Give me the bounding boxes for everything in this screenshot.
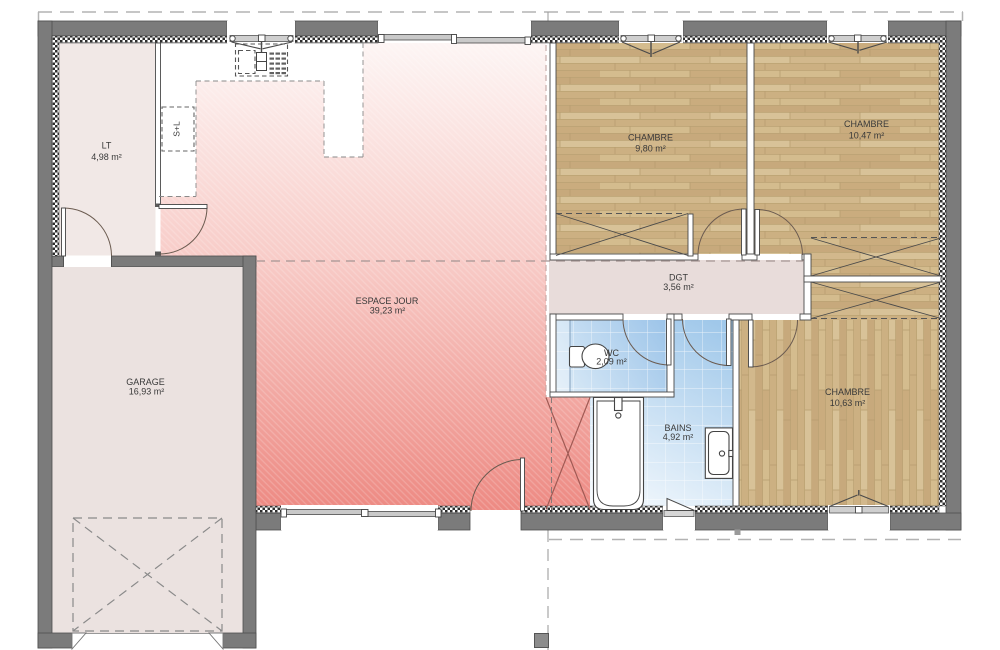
svg-text:16,93 m²: 16,93 m²: [129, 387, 165, 397]
svg-text:9,80 m²: 9,80 m²: [635, 144, 666, 154]
svg-text:4,98 m²: 4,98 m²: [91, 152, 122, 162]
svg-text:S+L: S+L: [172, 121, 182, 137]
svg-text:39,23 m²: 39,23 m²: [370, 306, 406, 316]
svg-text:DGT: DGT: [669, 273, 689, 283]
svg-text:ESPACE JOUR: ESPACE JOUR: [356, 296, 419, 306]
svg-text:10,47 m²: 10,47 m²: [849, 131, 885, 141]
svg-text:CHAMBRE: CHAMBRE: [844, 119, 889, 129]
svg-text:CHAMBRE: CHAMBRE: [825, 387, 870, 397]
svg-text:CHAMBRE: CHAMBRE: [628, 133, 673, 143]
svg-text:3,56 m²: 3,56 m²: [663, 282, 694, 292]
svg-text:2,09 m²: 2,09 m²: [596, 357, 627, 367]
svg-text:GARAGE: GARAGE: [126, 377, 165, 387]
svg-text:10,63 m²: 10,63 m²: [830, 398, 866, 408]
svg-text:LT: LT: [102, 141, 112, 151]
svg-text:4,92 m²: 4,92 m²: [663, 432, 694, 442]
